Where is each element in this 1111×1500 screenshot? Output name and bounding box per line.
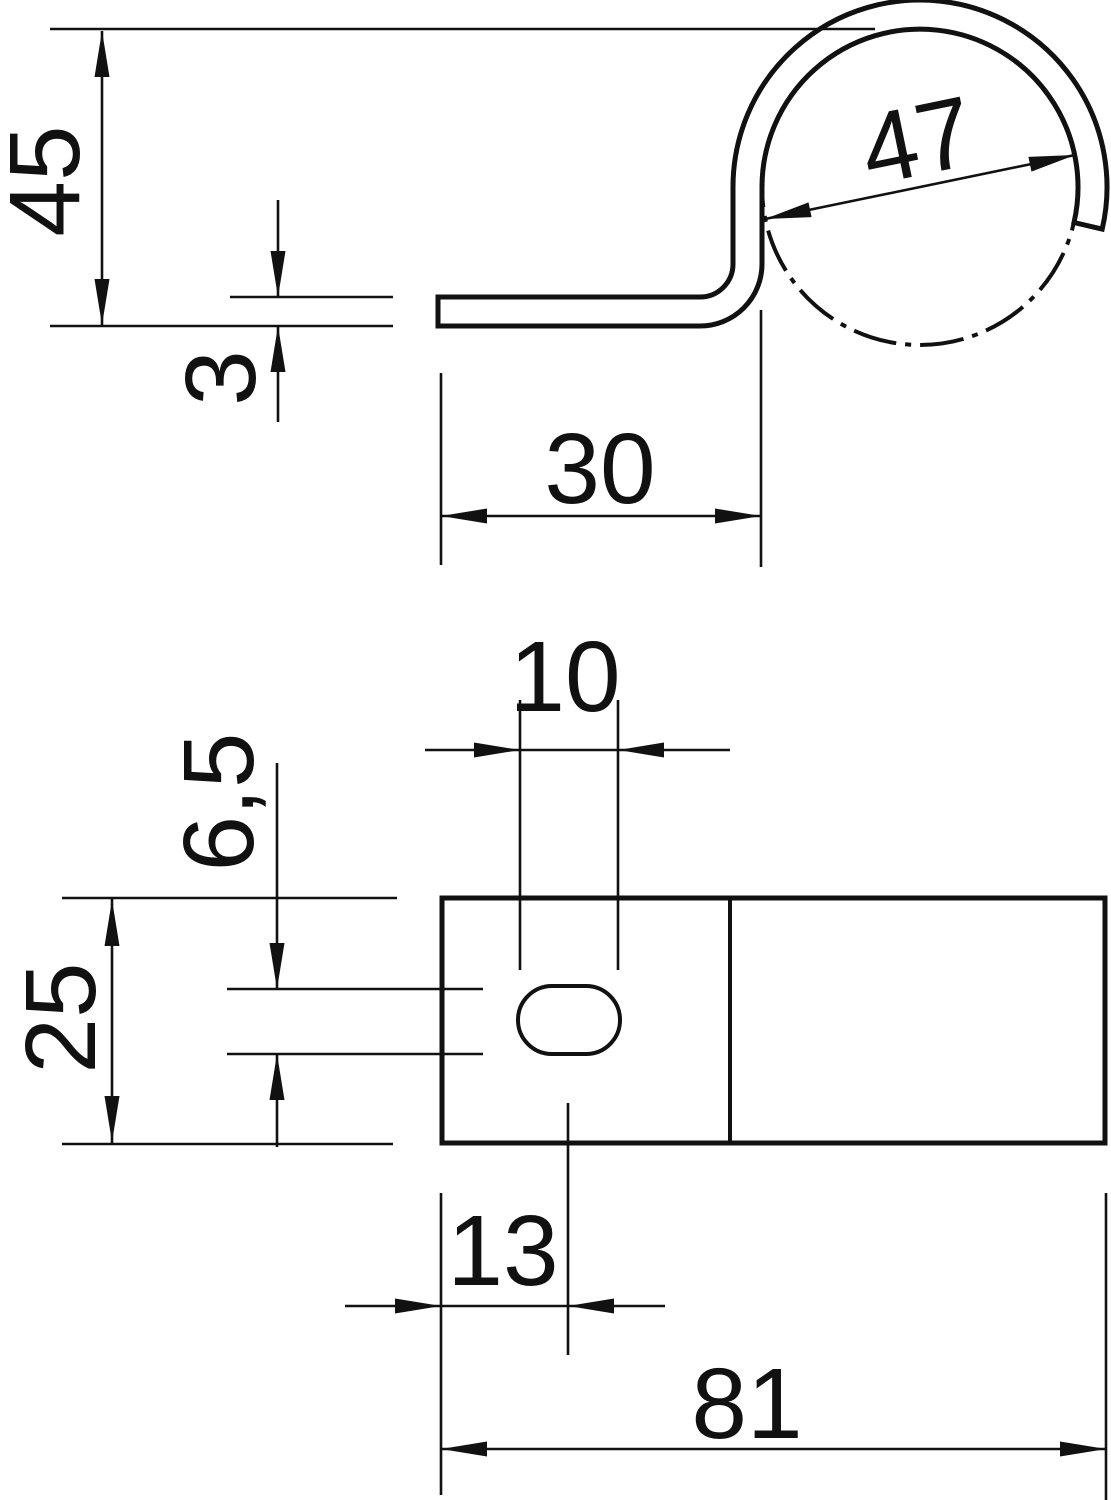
dimension-arrowhead [441,1442,487,1457]
dim-3: 3 [165,200,393,422]
dimension-arrowhead [270,1054,285,1100]
dimension-arrowhead [105,900,120,946]
clip-profile [438,0,1107,326]
dim-30-label: 30 [544,413,655,525]
dim-45-label: 45 [0,125,101,236]
technical-drawing-canvas: 45 3 30 47 [0,0,1111,1500]
dimension-arrowhead [105,1096,120,1142]
plan-outline [442,898,1105,1143]
dimension-arrowhead [568,1299,614,1314]
dimension-arrowhead [441,509,487,524]
dim-10: 10 [425,621,730,970]
dimension-arrowhead [271,251,286,297]
dim-47-label: 47 [851,75,982,207]
dim-47: 47 [765,75,1075,219]
plan-view: 10 6,5 25 13 81 [5,621,1106,1500]
dim-30: 30 [441,310,761,567]
dim-81-label: 81 [691,1348,802,1460]
dim-25-label: 25 [5,962,117,1073]
dim-13-label: 13 [447,1195,558,1307]
dimension-arrowhead [1028,155,1075,172]
dimension-arrowhead [95,279,110,325]
dimension-arrowhead [95,31,110,77]
dimension-arrowhead [270,943,285,989]
dim-13: 13 [345,1103,665,1495]
dim-3-label: 3 [165,350,277,406]
mounting-slot [518,986,620,1054]
dimension-arrowhead [1060,1442,1106,1457]
dim-6-5: 6,5 [163,732,483,1147]
dim-25: 25 [5,898,397,1144]
side-view: 45 3 30 47 [0,0,1107,567]
dimension-arrowhead [765,202,812,219]
dim-6-5-label: 6,5 [163,732,275,871]
dimension-arrowhead [474,743,520,758]
dimension-arrowhead [395,1299,441,1314]
dimension-arrowhead [271,326,286,372]
dim-10-label: 10 [509,621,620,733]
dimension-arrowhead [618,743,664,758]
dimension-arrowhead [715,509,761,524]
